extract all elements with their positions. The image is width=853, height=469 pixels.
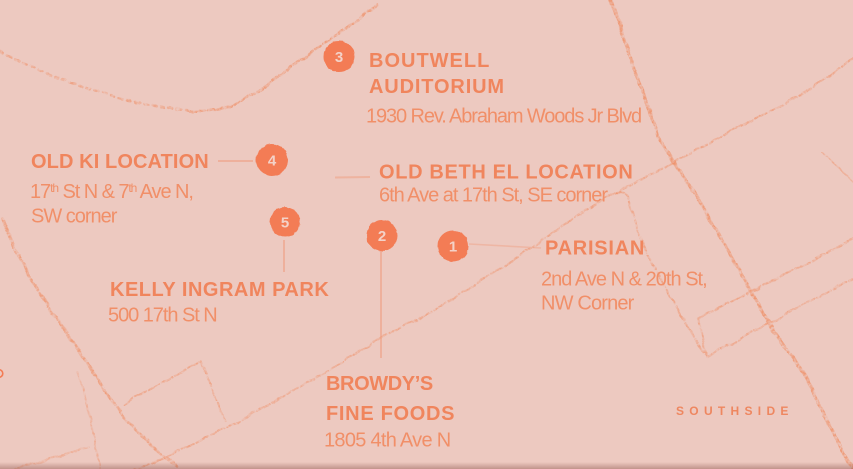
svg-text:NW Corner: NW Corner: [541, 293, 635, 315]
svg-text:2nd Ave N & 20th St,: 2nd Ave N & 20th St,: [541, 269, 707, 291]
svg-text:OLD KI LOCATION: OLD KI LOCATION: [31, 151, 209, 173]
svg-text:500 17th St N: 500 17th St N: [108, 305, 217, 327]
svg-text:6th Ave at 17th St, SE corner: 6th Ave at 17th St, SE corner: [379, 185, 608, 207]
svg-text:2: 2: [378, 228, 386, 245]
svg-text:FINE FOODS: FINE FOODS: [326, 403, 455, 425]
svg-text:KELLY INGRAM PARK: KELLY INGRAM PARK: [110, 279, 329, 301]
svg-text:4: 4: [268, 152, 277, 169]
svg-text:SW corner: SW corner: [31, 206, 118, 228]
svg-text:OLD BETH EL LOCATION: OLD BETH EL LOCATION: [379, 162, 633, 184]
svg-text:3: 3: [335, 49, 343, 66]
svg-text:PARISIAN: PARISIAN: [545, 238, 645, 260]
svg-text:5: 5: [281, 214, 289, 231]
svg-text:1930 Rev. Abraham Woods Jr Blv: 1930 Rev. Abraham Woods Jr Blvd: [366, 106, 641, 128]
svg-text:BOUTWELL: BOUTWELL: [369, 50, 490, 72]
svg-text:1805 4th Ave N: 1805 4th Ave N: [324, 430, 450, 452]
svg-text:SOUTHSIDE: SOUTHSIDE: [676, 404, 794, 418]
svg-text:BROWDY’S: BROWDY’S: [326, 373, 433, 395]
svg-text:AUDITORIUM: AUDITORIUM: [369, 76, 505, 98]
svg-text:1: 1: [449, 238, 457, 255]
